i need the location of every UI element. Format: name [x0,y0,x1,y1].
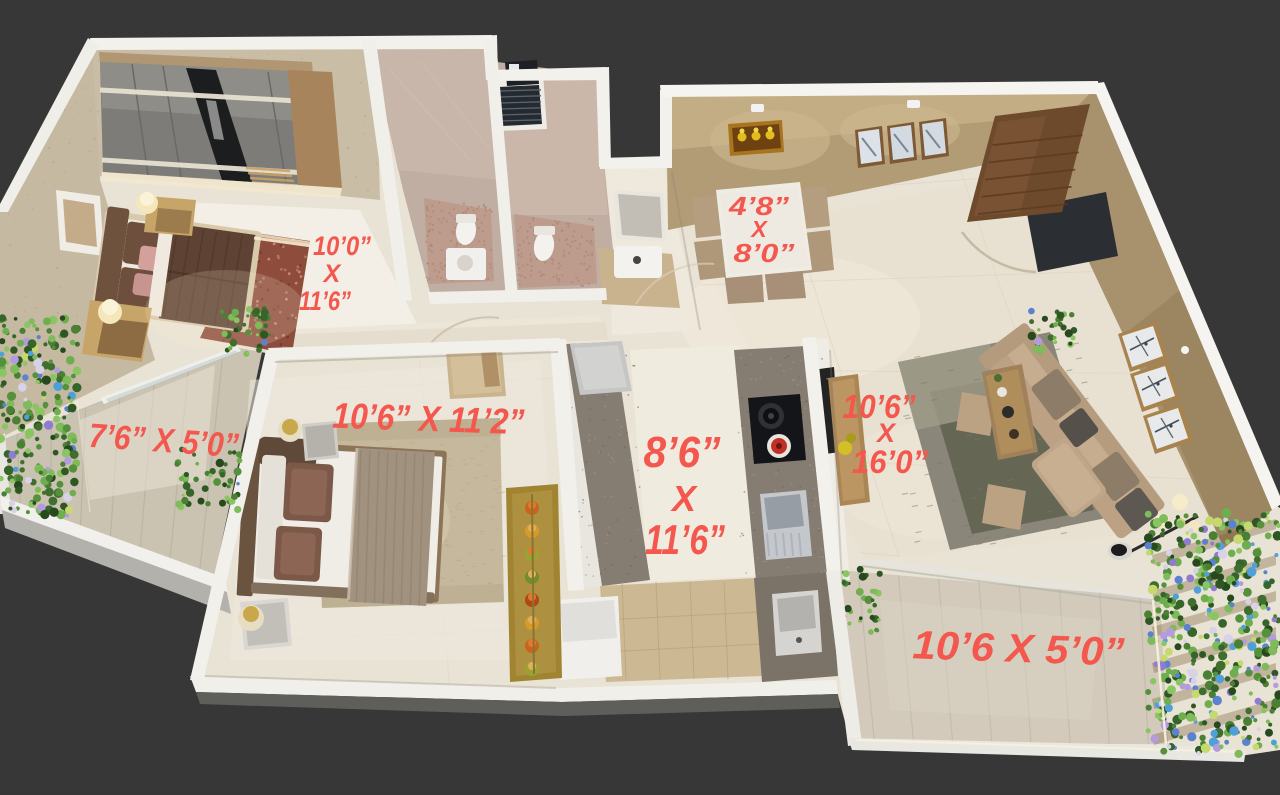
svg-text:10’6” X 11’2”: 10’6” X 11’2” [332,395,525,443]
svg-text:11’6”: 11’6” [645,516,725,563]
svg-text:X: X [322,260,342,288]
svg-text:16’0”: 16’0” [852,444,928,480]
svg-text:11’6”: 11’6” [299,286,351,316]
svg-text:10’6 X 5’0”: 10’6 X 5’0” [912,623,1125,674]
svg-text:8’6”: 8’6” [644,428,721,477]
svg-text:10’0”: 10’0” [313,231,371,261]
svg-text:8’0”: 8’0” [734,238,795,268]
svg-text:X: X [670,478,698,519]
